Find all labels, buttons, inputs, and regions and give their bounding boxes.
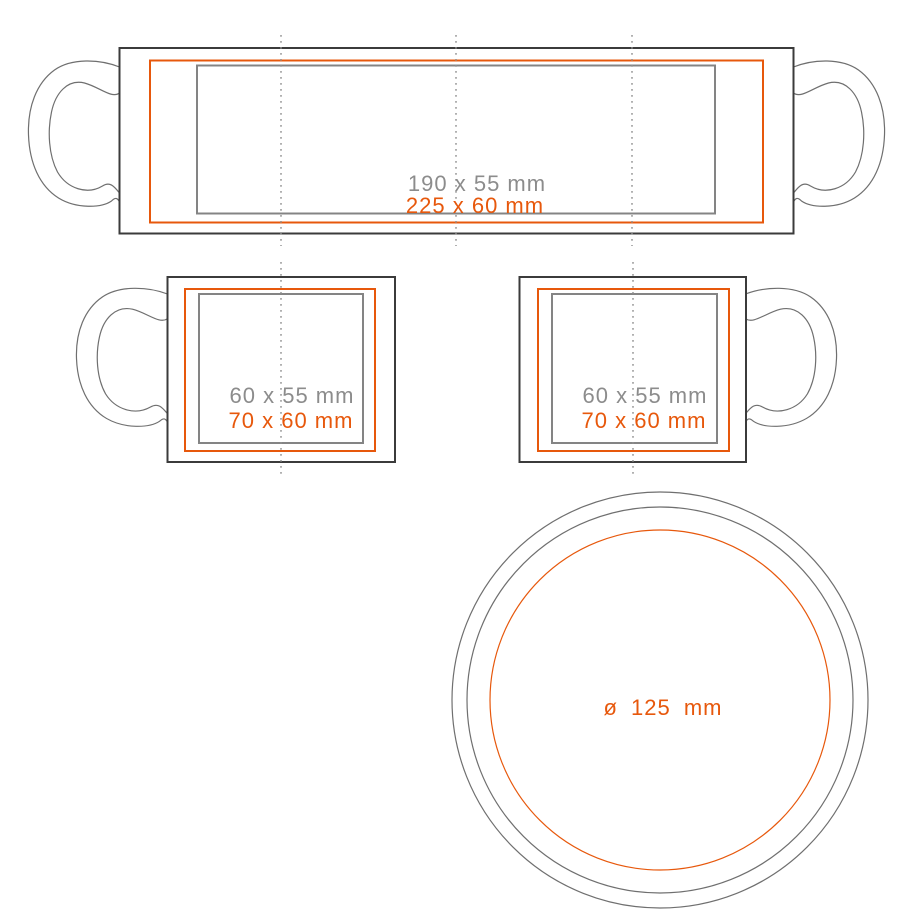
left-side-view-safe-area-label: 60 x 55 mm [230, 385, 355, 407]
left-side-view-max-area-label: 70 x 60 mm [229, 410, 354, 432]
mug-print-area-diagram: 190 x 55 mm 225 x 60 mm 60 x 55 mm 70 x … [0, 0, 900, 923]
wrap-view-max-area-label: 225 x 60 mm [406, 195, 544, 217]
bottom-view-diameter-label: ø 125 mm [603, 697, 722, 719]
wrap-view-left-handle [28, 61, 119, 206]
diagram-canvas [0, 0, 900, 923]
wrap-view-safe-area-label: 190 x 55 mm [408, 173, 546, 195]
left-side-view-handle [76, 288, 167, 426]
right-side-view-max-area-label: 70 x 60 mm [582, 410, 707, 432]
wrap-view-right-handle [794, 61, 885, 206]
right-side-view-handle [746, 288, 837, 426]
right-side-view-safe-area-label: 60 x 55 mm [583, 385, 708, 407]
